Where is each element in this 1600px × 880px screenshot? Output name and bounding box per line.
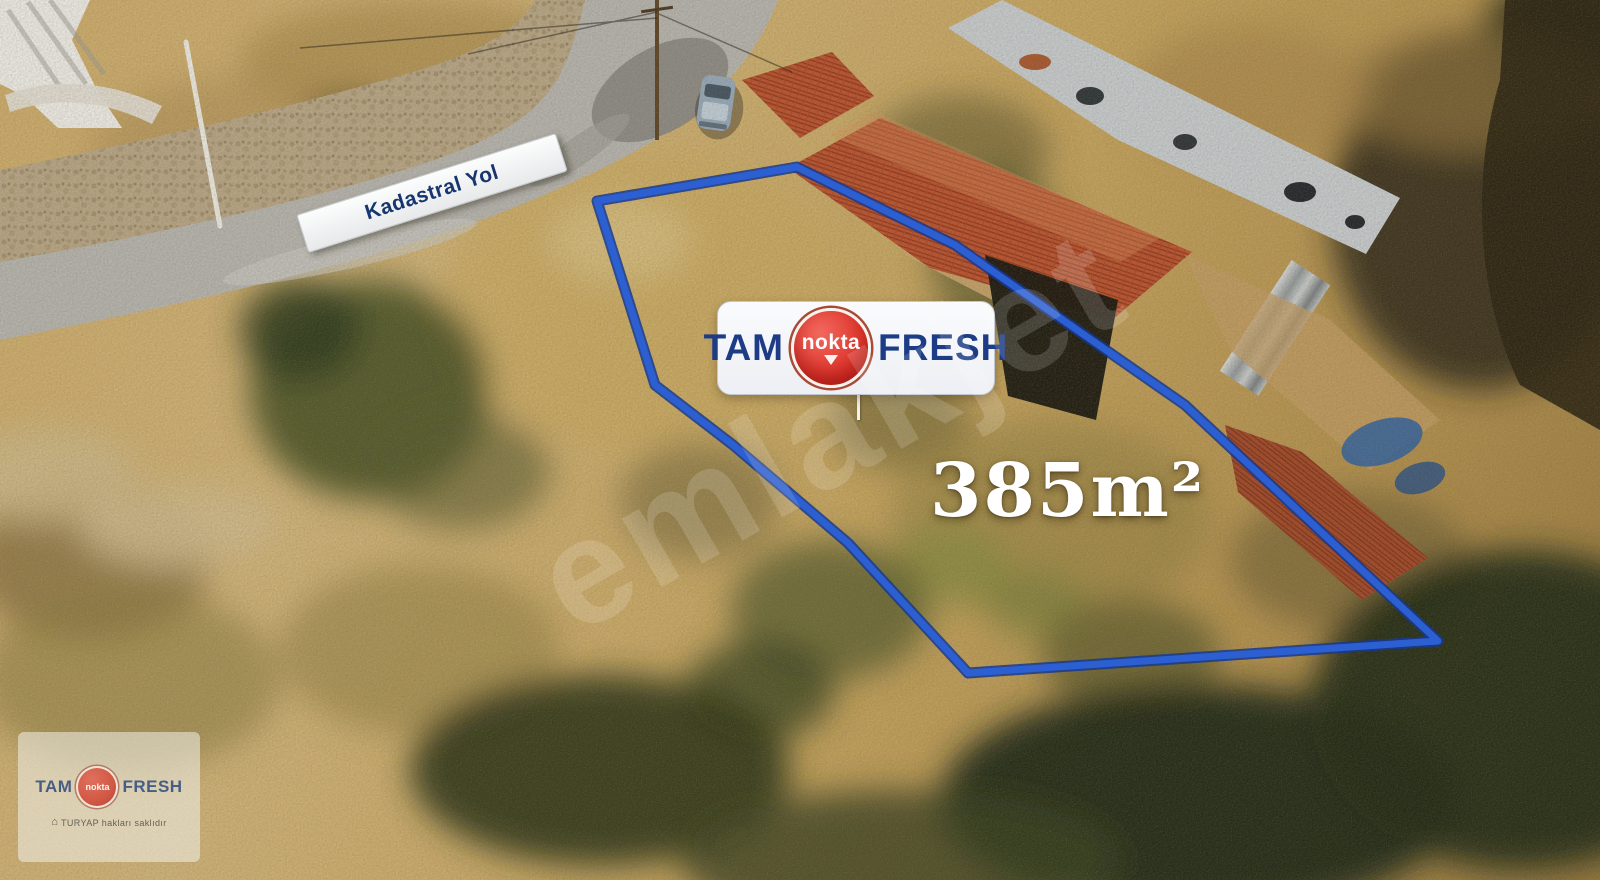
- aerial-photo-canvas: Kadastral Yol TAM nokta FRESH 385m² emla…: [0, 0, 1600, 880]
- agency-pin-circle: nokta: [76, 766, 118, 808]
- brand-word-tam: TAM: [704, 327, 784, 369]
- brand-badge: TAM nokta FRESH: [717, 301, 995, 395]
- grain-light: [0, 0, 1600, 880]
- agency-logo: TAM nokta FRESH: [35, 766, 182, 808]
- agency-word-nokta: nokta: [85, 782, 109, 792]
- brand-word-fresh: FRESH: [878, 327, 1008, 369]
- agency-word-tam: TAM: [35, 777, 72, 797]
- parcel-area-label: 385m²: [930, 448, 1205, 534]
- brand-word-nokta: nokta: [802, 332, 861, 353]
- map-pin-icon: [824, 355, 838, 365]
- badge-pointer-stem: [857, 393, 860, 420]
- terrain-scene: [0, 0, 1600, 880]
- agency-attribution: ⌂ TURYAP hakları saklıdır: [51, 817, 166, 828]
- house-icon: ⌂: [51, 817, 58, 828]
- agency-word-fresh: FRESH: [122, 777, 182, 797]
- agency-badge: TAM nokta FRESH ⌂ TURYAP hakları saklıdı…: [18, 732, 200, 862]
- brand-pin-circle: nokta: [791, 308, 871, 388]
- agency-attribution-text: TURYAP hakları saklıdır: [61, 818, 167, 828]
